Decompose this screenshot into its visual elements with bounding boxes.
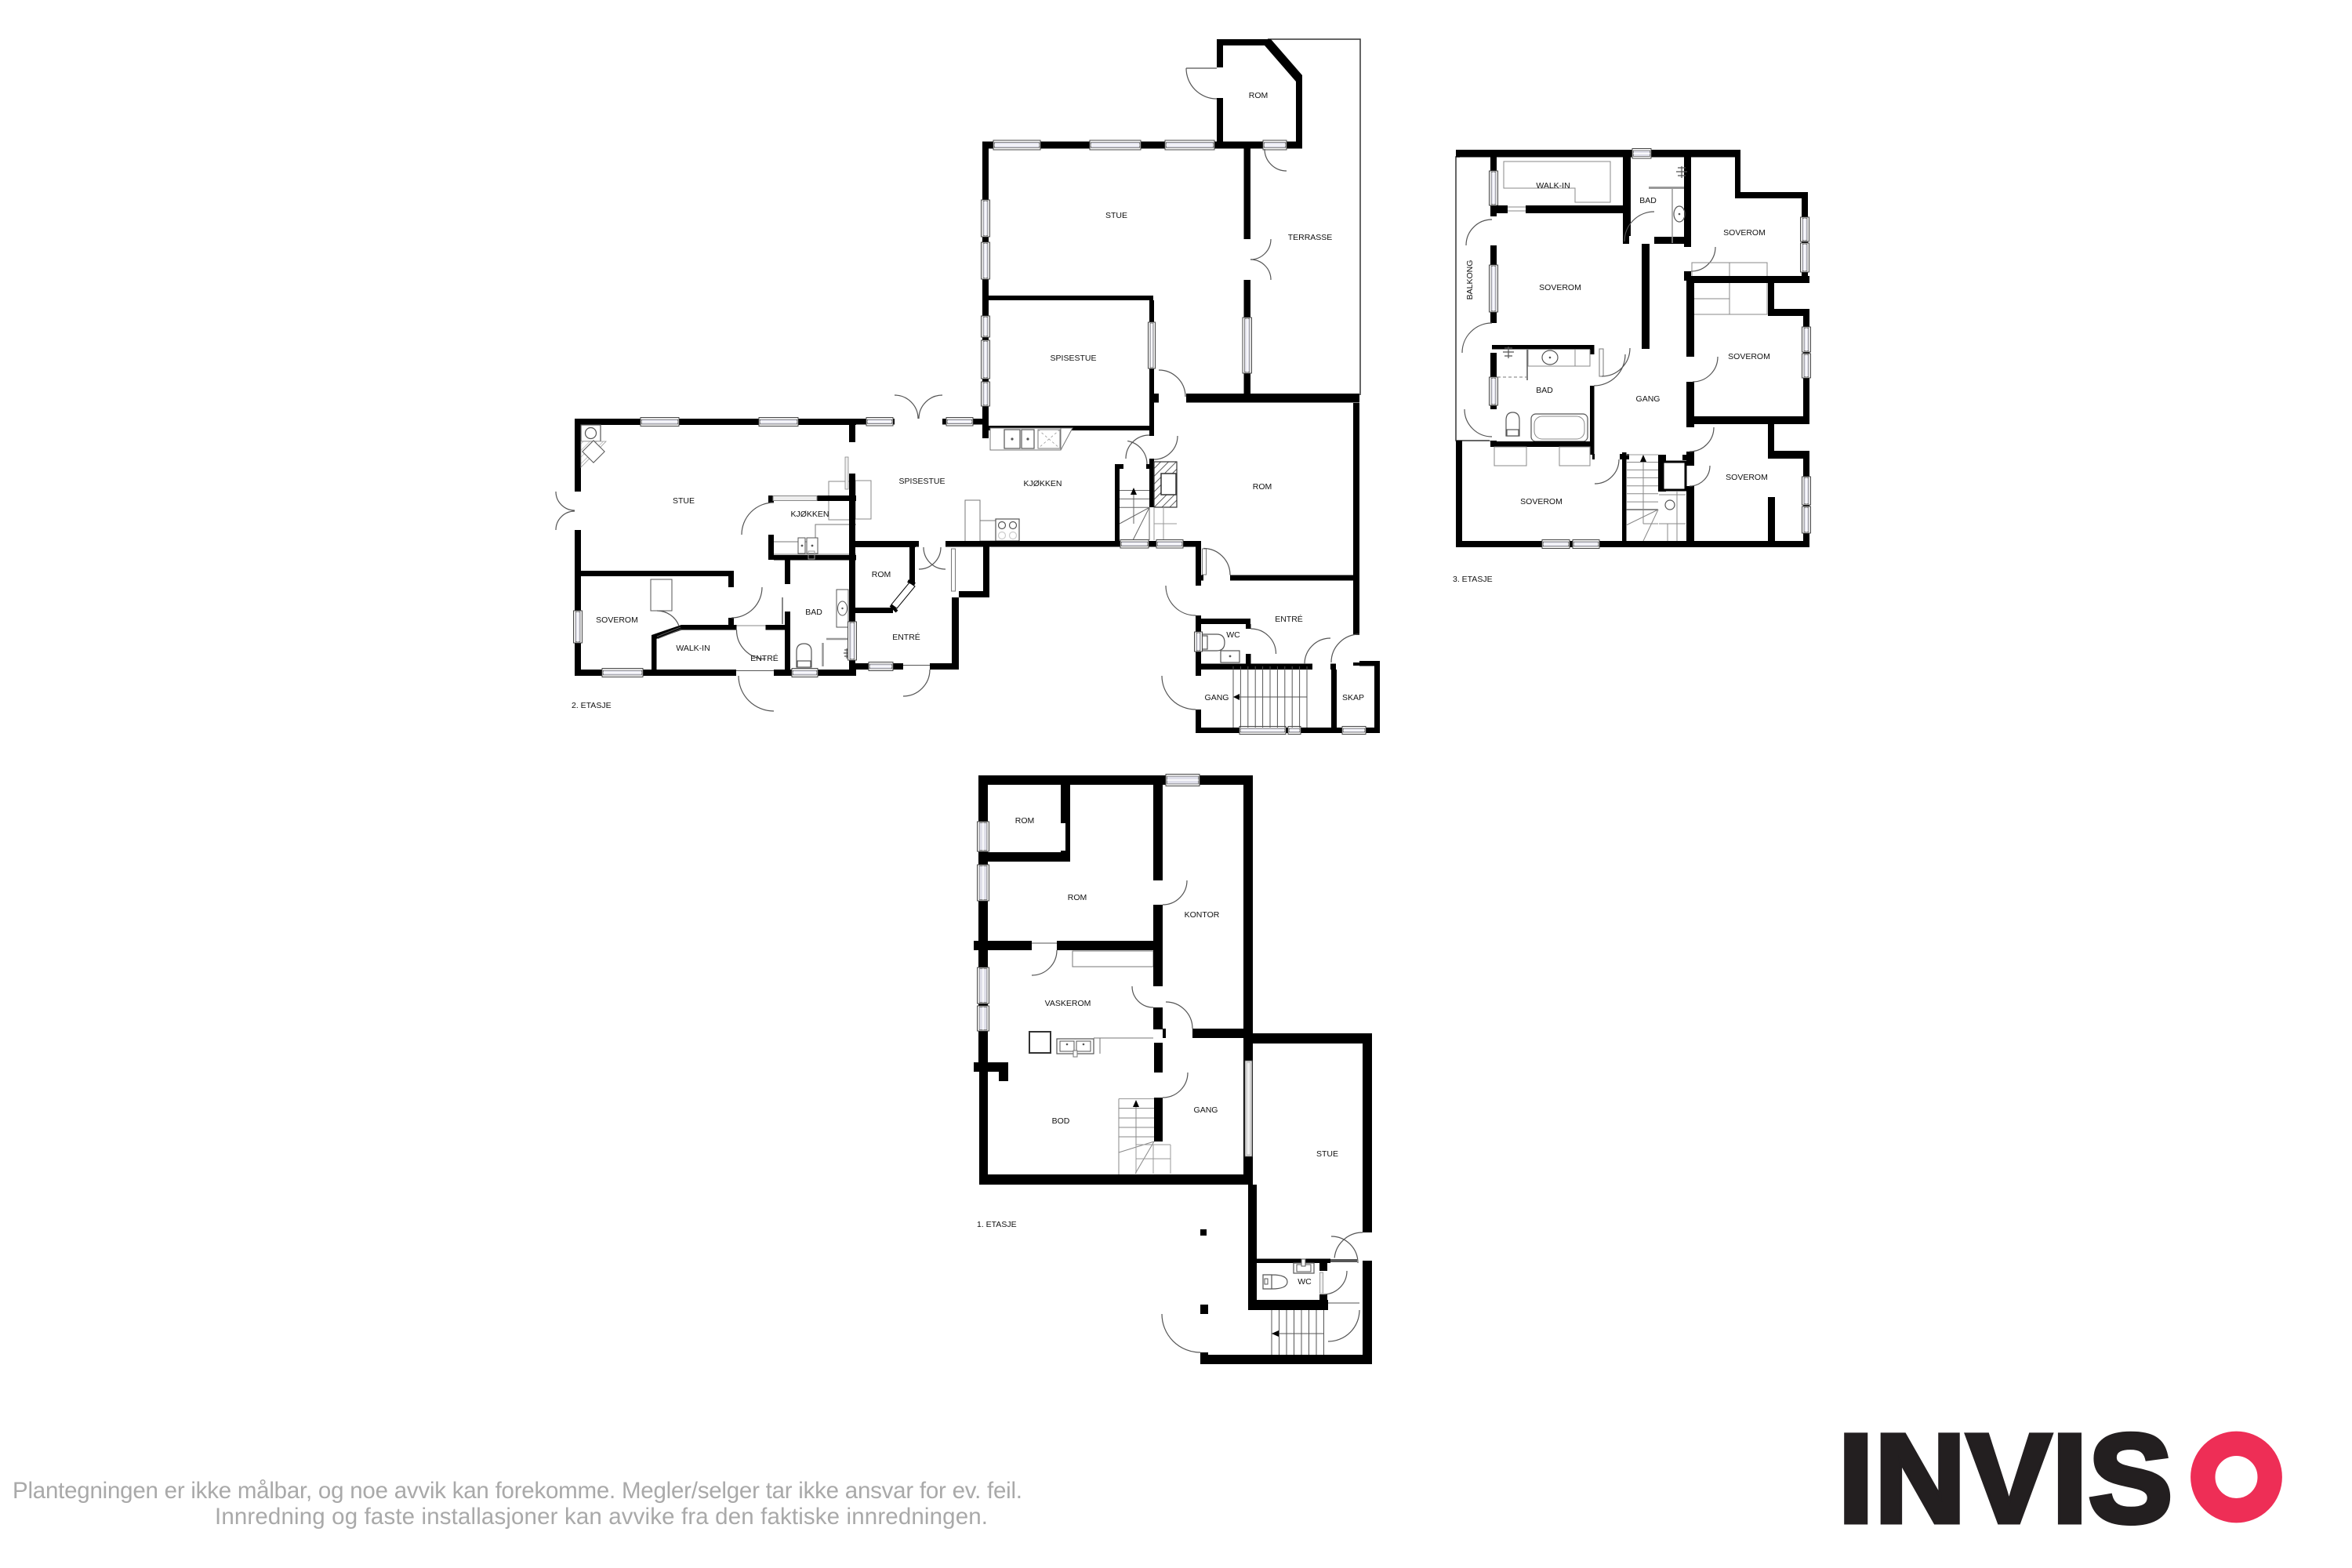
svg-text:ROM: ROM <box>1015 816 1035 826</box>
svg-text:SKAP: SKAP <box>1342 693 1364 702</box>
svg-text:SOVEROM: SOVEROM <box>596 615 638 625</box>
svg-text:STUE: STUE <box>673 496 695 506</box>
svg-text:ROM: ROM <box>1068 893 1087 902</box>
svg-text:Innredning og faste installasj: Innredning og faste installasjoner kan a… <box>215 1504 988 1530</box>
svg-text:ENTRÉ: ENTRÉ <box>892 632 920 642</box>
svg-text:INVIS: INVIS <box>1838 1408 2174 1548</box>
svg-text:SPISESTUE: SPISESTUE <box>1051 354 1097 363</box>
svg-text:BALKONG: BALKONG <box>1465 260 1475 300</box>
svg-text:ENTRÉ: ENTRÉ <box>1275 614 1303 624</box>
svg-text:BAD: BAD <box>1536 386 1553 395</box>
svg-text:WC: WC <box>1298 1277 1312 1287</box>
svg-text:KJØKKEN: KJØKKEN <box>790 510 829 519</box>
svg-text:VASKEROM: VASKEROM <box>1045 999 1091 1008</box>
svg-text:STUE: STUE <box>1316 1149 1338 1159</box>
svg-text:SOVEROM: SOVEROM <box>1728 352 1770 361</box>
svg-text:STUE: STUE <box>1105 211 1127 220</box>
svg-text:2. ETASJE: 2. ETASJE <box>572 701 612 710</box>
svg-text:SOVEROM: SOVEROM <box>1520 497 1563 506</box>
svg-text:3. ETASJE: 3. ETASJE <box>1453 575 1493 584</box>
svg-text:Plantegningen er ikke målbar,: Plantegningen er ikke målbar, og noe avv… <box>13 1478 1022 1504</box>
svg-text:WALK-IN: WALK-IN <box>1536 181 1570 191</box>
svg-text:KJØKKEN: KJØKKEN <box>1023 479 1062 488</box>
svg-text:ROM: ROM <box>1249 91 1269 100</box>
svg-text:ROM: ROM <box>872 570 891 579</box>
svg-text:BAD: BAD <box>805 608 822 617</box>
svg-text:GANG: GANG <box>1205 693 1229 702</box>
svg-text:SOVEROM: SOVEROM <box>1723 228 1766 238</box>
svg-text:TERRASSE: TERRASSE <box>1288 233 1333 242</box>
svg-text:BAD: BAD <box>1639 196 1657 205</box>
svg-text:WC: WC <box>1226 630 1240 640</box>
svg-text:WALK-IN: WALK-IN <box>676 644 710 653</box>
svg-text:GANG: GANG <box>1194 1105 1218 1115</box>
svg-text:GANG: GANG <box>1636 394 1661 404</box>
svg-text:SOVEROM: SOVEROM <box>1539 283 1581 292</box>
svg-text:KONTOR: KONTOR <box>1185 910 1220 920</box>
svg-text:SPISESTUE: SPISESTUE <box>899 477 946 486</box>
svg-text:ROM: ROM <box>1253 482 1272 492</box>
svg-text:SOVEROM: SOVEROM <box>1726 473 1768 482</box>
svg-text:BOD: BOD <box>1052 1116 1070 1126</box>
svg-text:1. ETASJE: 1. ETASJE <box>977 1220 1017 1229</box>
svg-text:ENTRÉ: ENTRÉ <box>750 653 779 663</box>
